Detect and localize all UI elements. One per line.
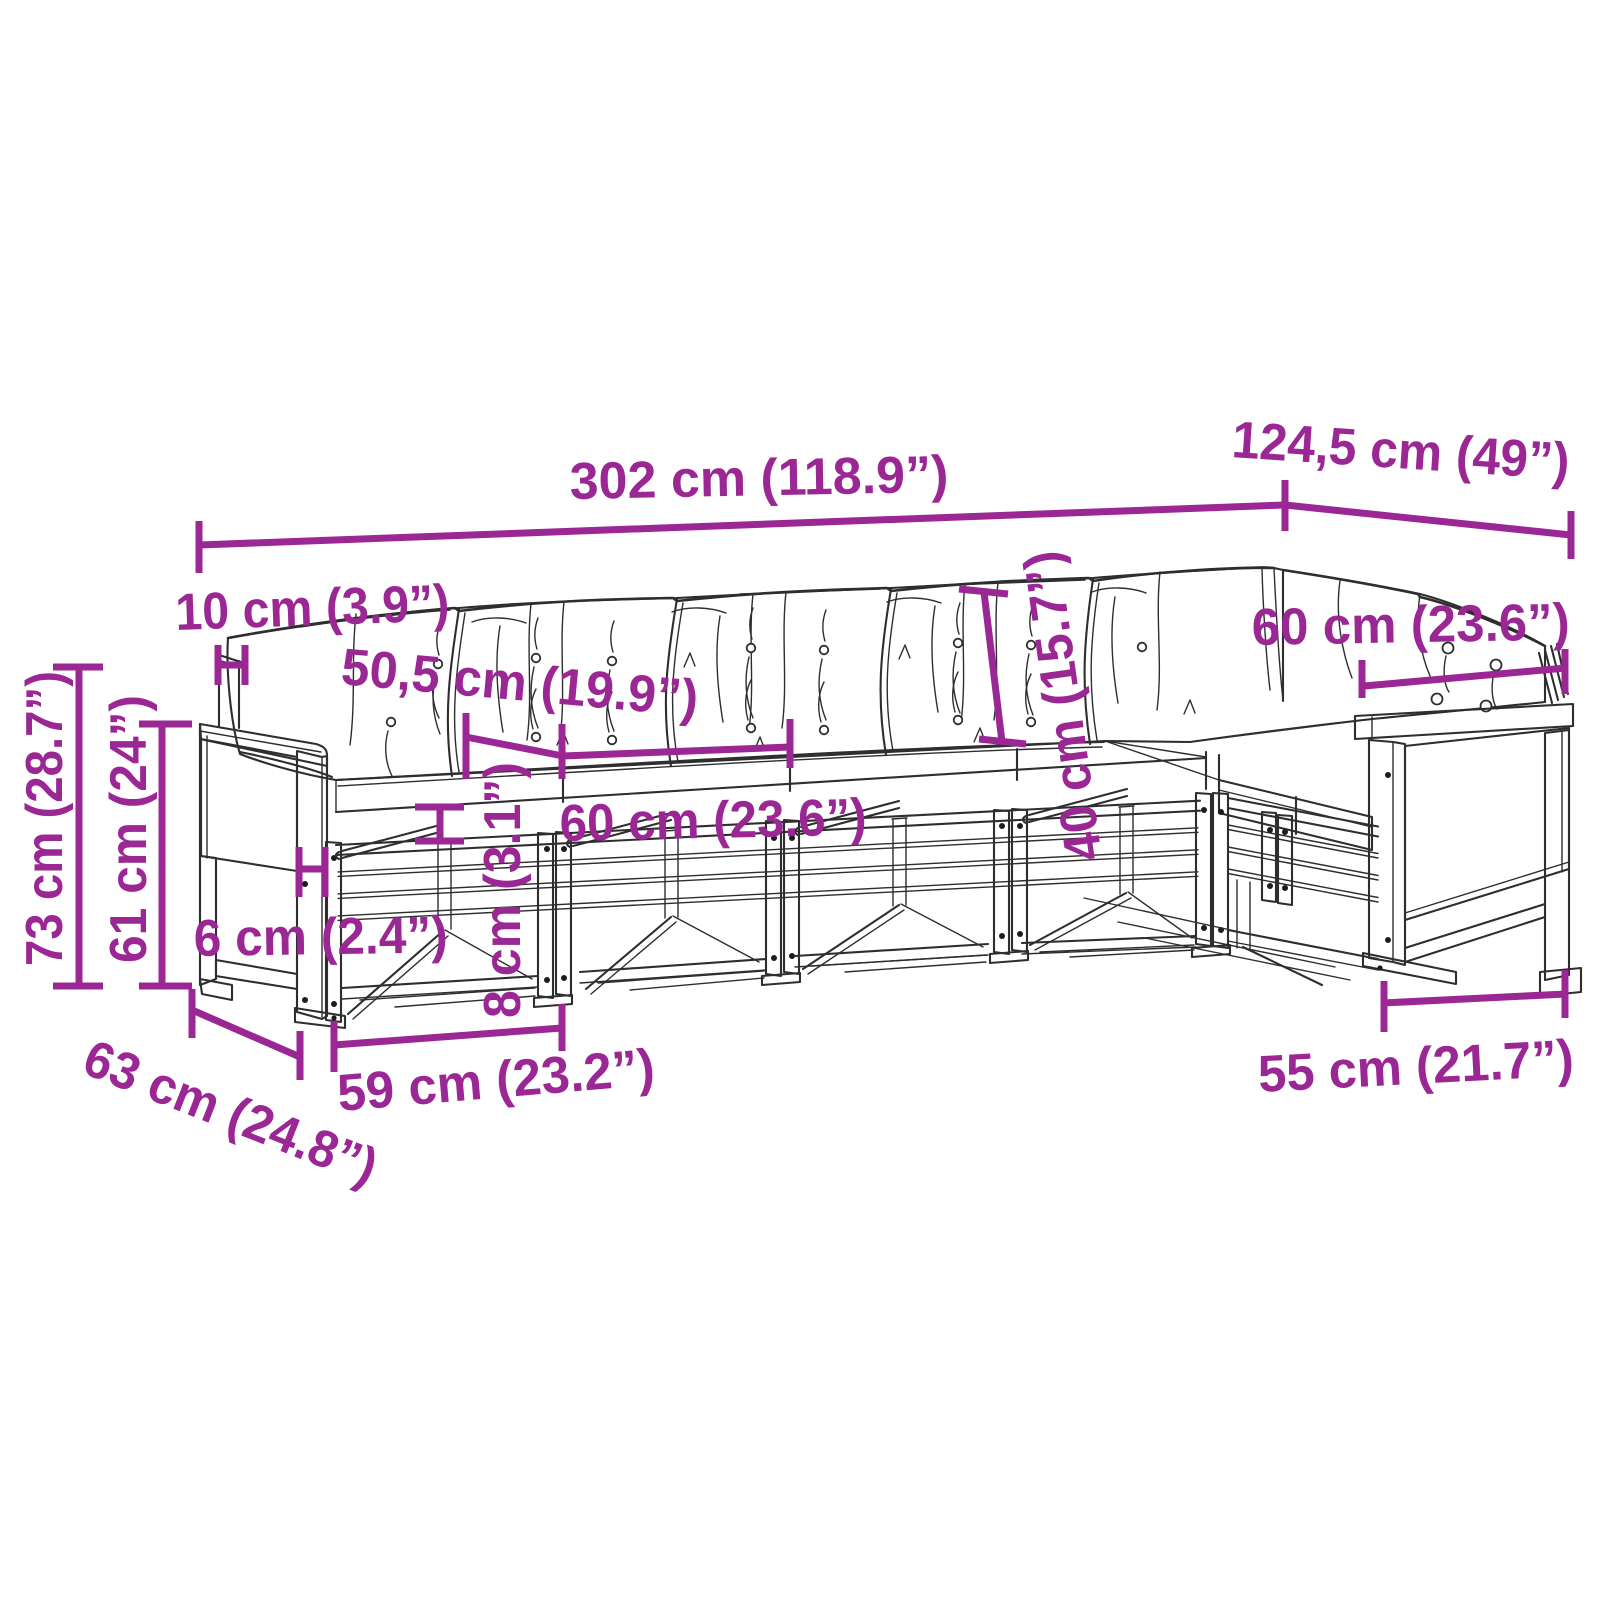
svg-text:302 cm (118.9”): 302 cm (118.9”) bbox=[569, 446, 949, 511]
svg-text:61 cm (24”): 61 cm (24”) bbox=[100, 695, 158, 963]
svg-text:8 cm (3.1”): 8 cm (3.1”) bbox=[474, 762, 532, 1018]
svg-text:60 cm (23.6”): 60 cm (23.6”) bbox=[1251, 593, 1570, 657]
svg-text:10 cm (3.9”): 10 cm (3.9”) bbox=[174, 574, 450, 642]
svg-text:60 cm (23.6”): 60 cm (23.6”) bbox=[559, 789, 867, 853]
svg-text:73 cm (28.7”): 73 cm (28.7”) bbox=[16, 671, 74, 966]
svg-text:6 cm (2.4”): 6 cm (2.4”) bbox=[193, 906, 448, 968]
